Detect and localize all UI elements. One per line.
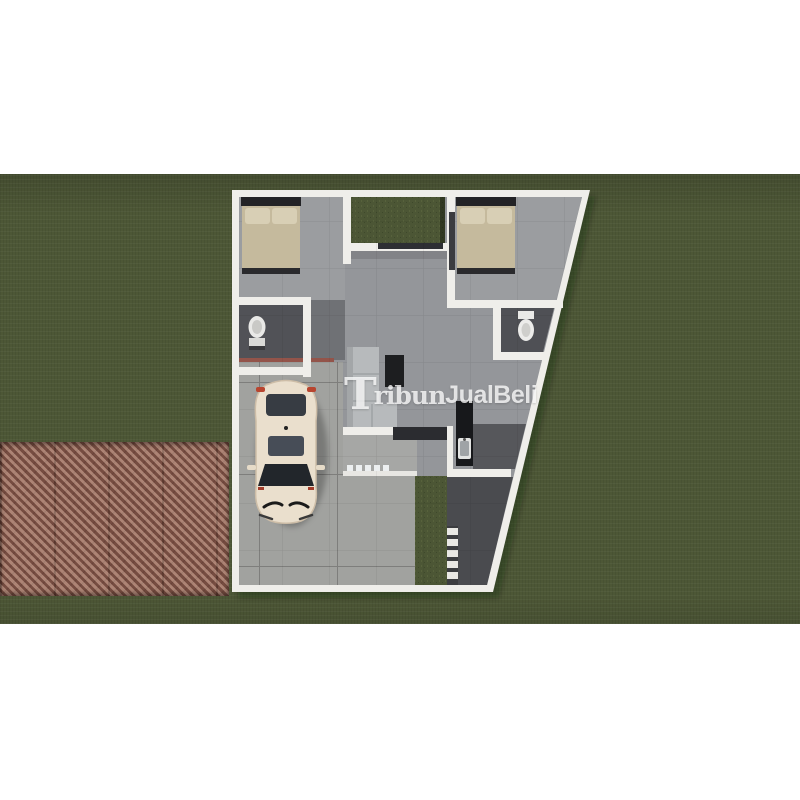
wall-shadow-face — [449, 212, 455, 270]
toilet-left — [249, 316, 266, 350]
car-mirror-left — [247, 465, 256, 470]
car-sunroof — [268, 436, 304, 456]
bed-right — [456, 197, 516, 274]
coffee-table — [385, 355, 404, 387]
entry-sliding-door — [393, 427, 447, 440]
car-mirror-right — [316, 465, 325, 470]
toilet-right — [518, 311, 534, 341]
kitchen-sink — [460, 441, 469, 456]
bed-left — [241, 197, 301, 274]
car — [247, 381, 328, 528]
floor-plan — [0, 174, 800, 624]
kitchen-counter — [456, 401, 473, 466]
car-windshield — [258, 464, 314, 486]
car-rear-window — [266, 394, 306, 416]
aerial-render-photo: TribunJualBeli — [0, 174, 800, 624]
